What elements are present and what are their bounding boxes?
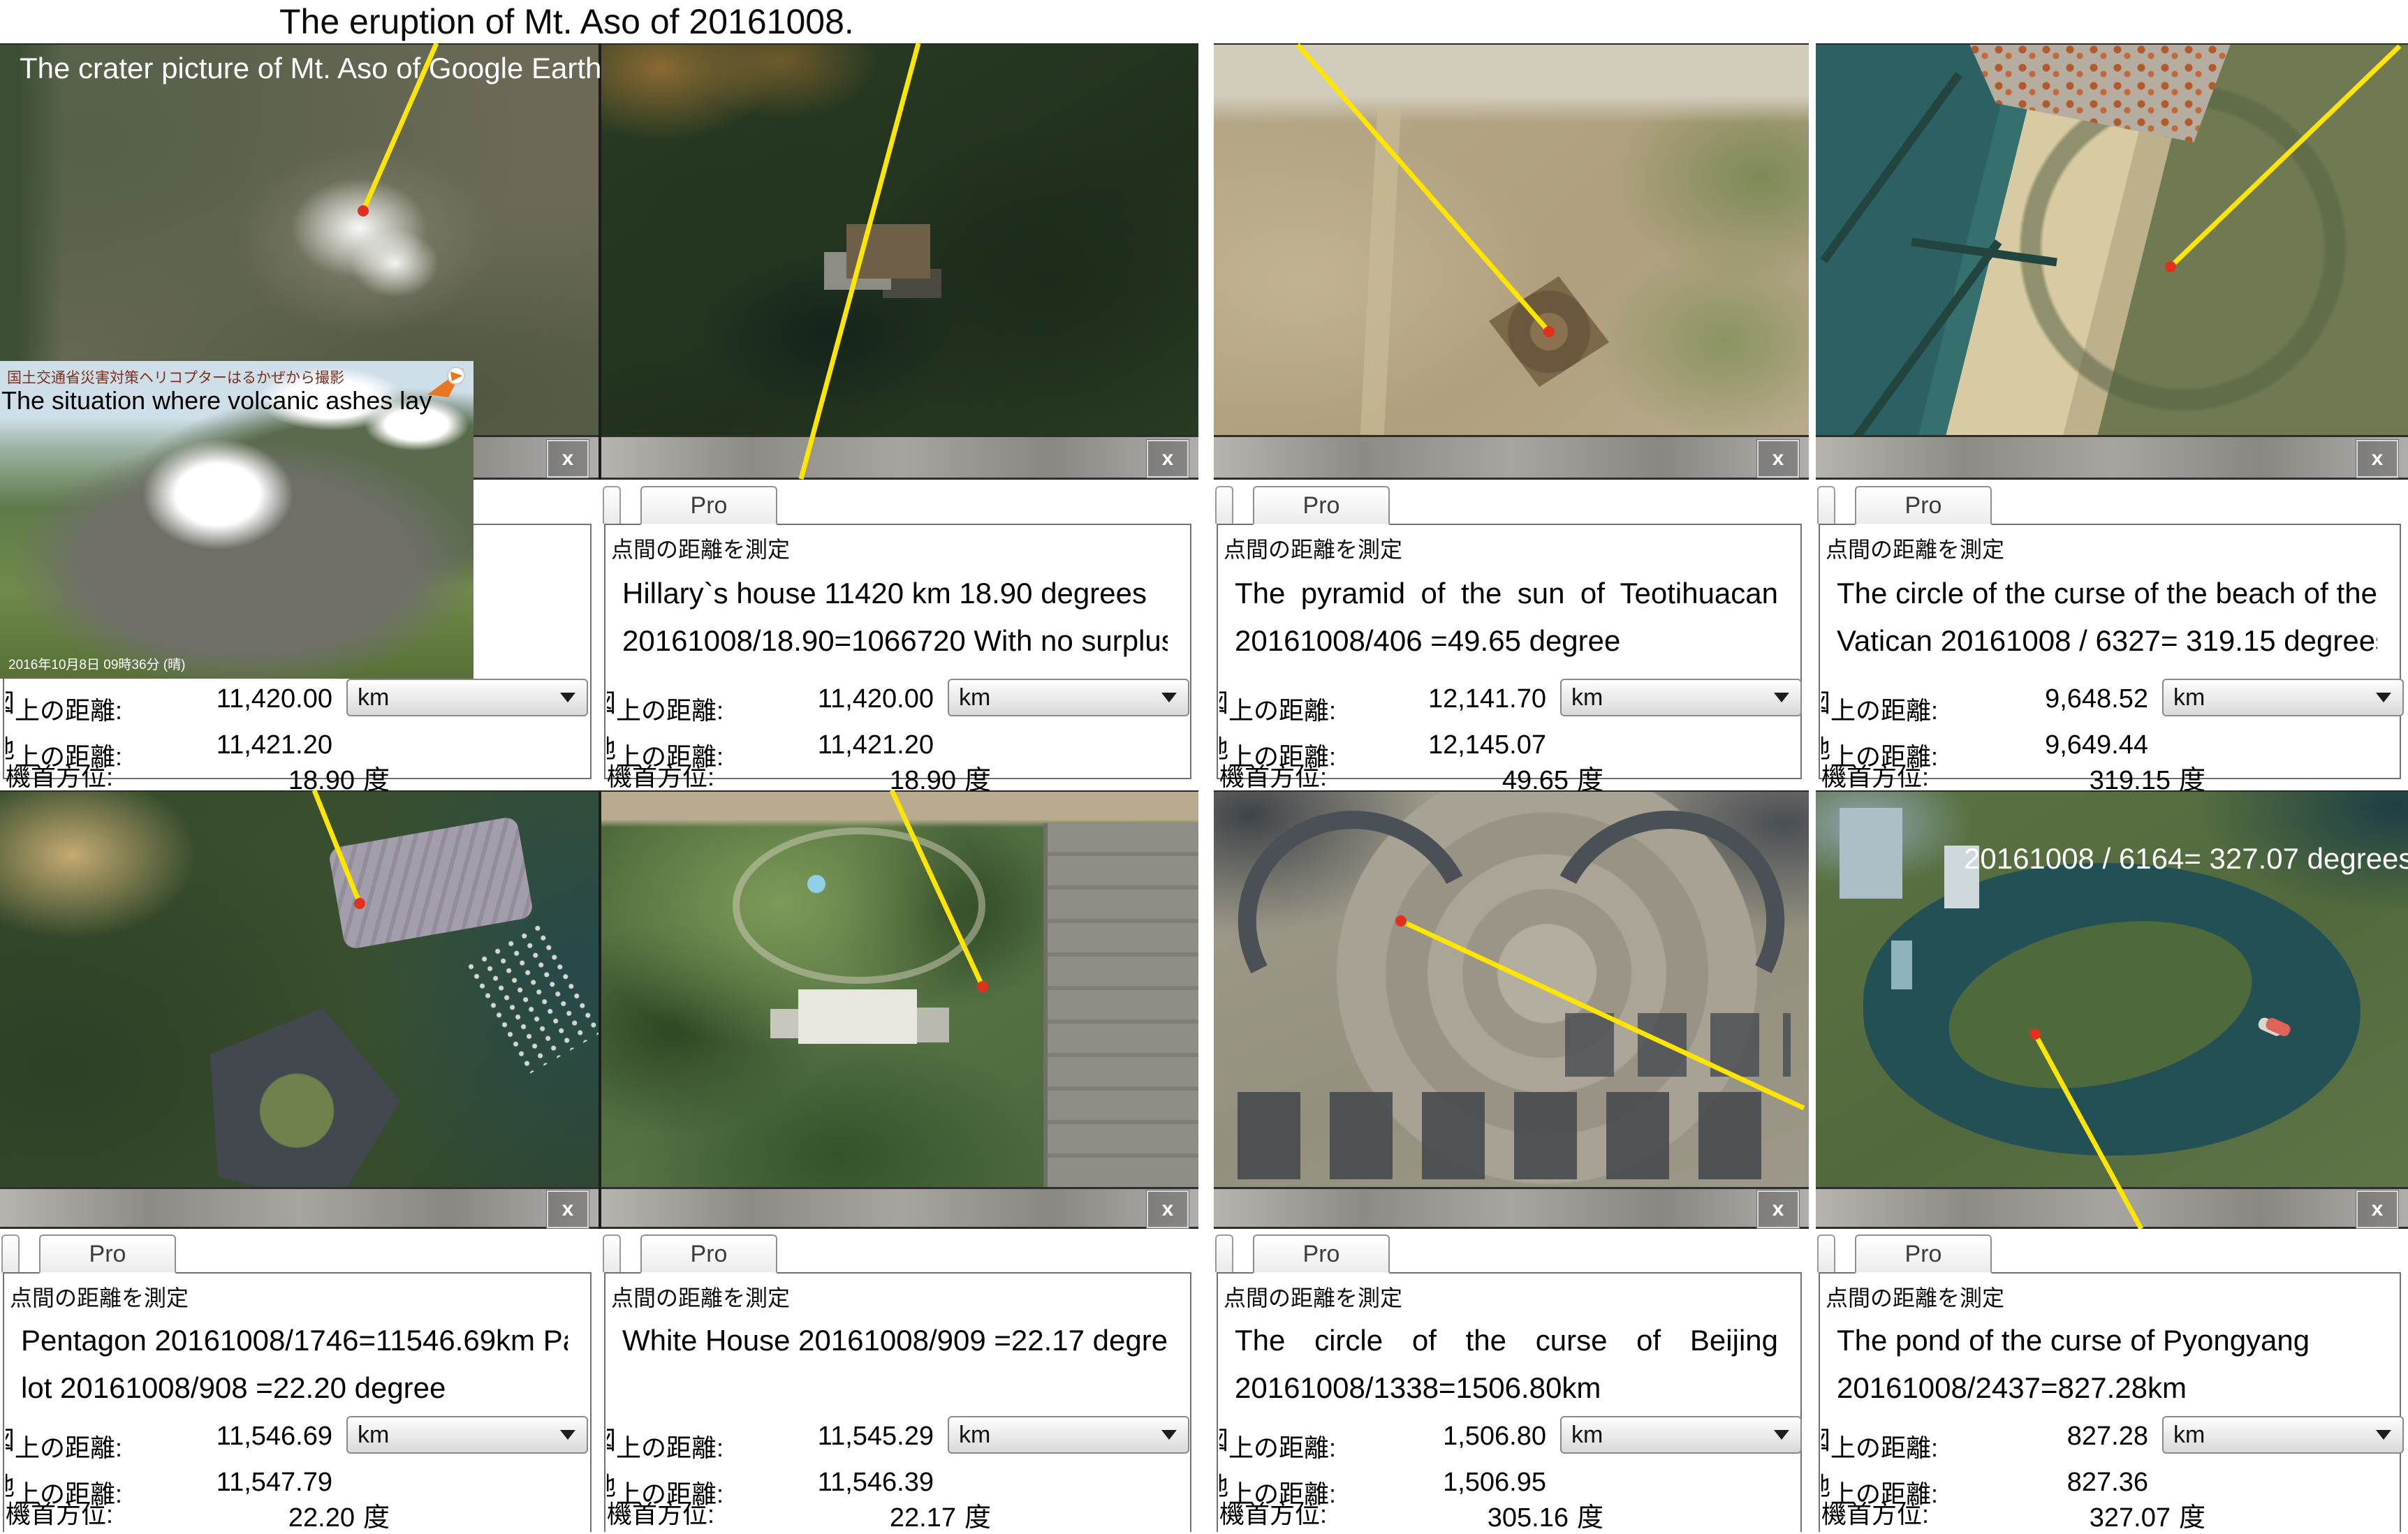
- satellite-view-white-house[interactable]: [601, 790, 1198, 1187]
- measure-dialog-title: 点間の距離を測定: [1224, 1281, 1402, 1313]
- measure-note-line1: The circle of the curse of the beach of …: [1837, 577, 2377, 610]
- window-bottom-strip: [1214, 1187, 1809, 1229]
- map-distance-value: 827.28: [1816, 1422, 2148, 1452]
- map-distance-row: 図上の距離: 1,506.80 km: [1214, 1416, 1809, 1456]
- heading-row: 機首方位: 18.90度: [0, 753, 599, 793]
- measure-dialog-title: 点間の距離を測定: [10, 1281, 189, 1313]
- chevron-down-icon: [560, 693, 575, 702]
- unit-select[interactable]: km: [948, 679, 1189, 716]
- government-building: [1043, 823, 1198, 1187]
- unit-select[interactable]: km: [1560, 679, 1802, 716]
- window-bottom-strip: [1816, 1187, 2408, 1229]
- inset-caption: The situation where volcanic ashes lay: [1, 386, 432, 415]
- inset-credit: 国土交通省災害対策ヘリコプターはるかぜから撮影: [7, 367, 344, 388]
- tab-stub[interactable]: [1817, 1234, 1835, 1272]
- map-distance-value: 11,420.00: [0, 684, 332, 714]
- tab-pro[interactable]: Pro: [640, 1234, 777, 1274]
- chevron-down-icon: [560, 1430, 575, 1440]
- chevron-down-icon: [1774, 1430, 1789, 1440]
- map-distance-row: 図上の距離: 9,648.52 km: [1816, 679, 2408, 719]
- satellite-view-vatican-beach[interactable]: [1816, 43, 2408, 435]
- measure-note-line1: Hillary`s house 11420 km 18.90 degrees: [622, 577, 1168, 610]
- window-bottom-strip: [601, 435, 1198, 480]
- heading-row: 機首方位: 49.65度: [1214, 753, 1809, 793]
- tab-pro[interactable]: Pro: [1253, 1234, 1390, 1274]
- close-button[interactable]: x: [547, 440, 589, 478]
- tab-stub[interactable]: [1, 1234, 20, 1272]
- chevron-down-icon: [1161, 693, 1177, 702]
- heading-value: 18.90度: [601, 758, 991, 797]
- building-row: [1565, 1013, 1791, 1077]
- close-button[interactable]: x: [2356, 1190, 2398, 1228]
- window-bottom-strip: [1214, 435, 1809, 480]
- unit-select[interactable]: km: [2162, 1416, 2404, 1454]
- heading-row: 機首方位: 319.15度: [1816, 753, 2408, 793]
- tab-stub[interactable]: [1215, 486, 1233, 524]
- page-title: The eruption of Mt. Aso of 20161008.: [279, 1, 854, 42]
- fountain: [807, 875, 825, 893]
- heading-row: 機首方位: 305.16度: [1214, 1490, 1809, 1531]
- satellite-view-teotihuacan[interactable]: [1214, 43, 1809, 435]
- measure-note-line2: 20161008/1338=1506.80km: [1235, 1371, 1778, 1405]
- map-distance-value: 12,141.70: [1214, 684, 1546, 714]
- chevron-down-icon: [2376, 1430, 2391, 1440]
- measure-note-line2: Vatican 20161008 / 6327= 319.15 degrees: [1837, 624, 2377, 658]
- image-overlay-text: 20161008 / 6164= 327.07 degrees: [1964, 842, 2408, 876]
- tab-pro[interactable]: Pro: [1855, 1234, 1992, 1274]
- heading-value: 327.07度: [1816, 1496, 2205, 1534]
- map-distance-row: 図上の距離: 827.28 km: [1816, 1416, 2408, 1456]
- window-seam: [599, 43, 601, 480]
- tab-pro[interactable]: Pro: [640, 486, 777, 525]
- window-bottom-strip: [1816, 435, 2408, 480]
- heading-value: 22.17度: [601, 1496, 991, 1534]
- measure-note-line1: Pentagon 20161008/1746=11546.69km Parkin…: [21, 1324, 568, 1357]
- map-distance-value: 11,545.29: [601, 1422, 934, 1452]
- map-distance-row: 図上の距離: 11,546.69 km: [0, 1416, 599, 1456]
- unit-select[interactable]: km: [346, 679, 588, 716]
- heading-row: 機首方位: 22.20度: [0, 1490, 599, 1531]
- map-distance-row: 図上の距離: 11,545.29 km: [601, 1416, 1198, 1456]
- map-distance-value: 1,506.80: [1214, 1422, 1546, 1452]
- measure-dialog-title: 点間の距離を測定: [611, 1281, 790, 1313]
- unit-select[interactable]: km: [2162, 679, 2404, 716]
- map-distance-row: 図上の距離: 12,141.70 km: [1214, 679, 1809, 719]
- building-row: [1238, 1092, 1785, 1179]
- satellite-view-hillarys-house[interactable]: [601, 43, 1198, 435]
- map-distance-row: 図上の距離: 11,420.00 km: [0, 679, 599, 719]
- heading-value: 305.16度: [1214, 1496, 1603, 1534]
- oval-driveway: [733, 827, 985, 984]
- tab-pro[interactable]: Pro: [39, 1234, 176, 1274]
- heading-value: 49.65度: [1214, 758, 1603, 797]
- map-distance-value: 11,420.00: [601, 684, 934, 714]
- house-building: [846, 224, 930, 279]
- unit-select[interactable]: km: [1560, 1416, 1802, 1454]
- chevron-down-icon: [1161, 1430, 1177, 1440]
- tab-pro[interactable]: Pro: [1253, 486, 1390, 525]
- map-distance-row: 図上の距離: 11,420.00 km: [601, 679, 1198, 719]
- measure-note-line1: White House 20161008/909 =22.17 degree: [622, 1324, 1168, 1357]
- unit-select[interactable]: km: [346, 1416, 588, 1454]
- heading-value: 18.90度: [0, 758, 390, 797]
- satellite-view-pentagon[interactable]: [0, 790, 599, 1187]
- tab-pro[interactable]: Pro: [1855, 486, 1992, 525]
- city-buildings: [1840, 808, 1902, 899]
- measure-dialog-title: 点間の距離を測定: [1224, 532, 1402, 564]
- close-button[interactable]: x: [1757, 440, 1799, 478]
- heading-value: 319.15度: [1816, 758, 2205, 797]
- helicopter-agency-logo-icon: [425, 365, 468, 401]
- unit-select[interactable]: km: [948, 1416, 1189, 1454]
- measure-dialog-title: 点間の距離を測定: [1826, 532, 2004, 564]
- measure-note-line2: 20161008/406 =49.65 degree: [1235, 624, 1778, 658]
- heading-row: 機首方位: 22.17度: [601, 1490, 1198, 1531]
- tab-stub[interactable]: [603, 486, 621, 524]
- inset-photo-volcanic-ash: 国土交通省災害対策ヘリコプターはるかぜから撮影 The situation wh…: [0, 361, 473, 679]
- measure-note-line1: The pyramid of the sun of Teotihuacan: [1235, 577, 1778, 610]
- window-bottom-strip: [601, 1187, 1198, 1229]
- window-seam: [599, 790, 601, 1229]
- close-button[interactable]: x: [547, 1190, 589, 1228]
- measure-note-line1: The pond of the curse of Pyongyang: [1837, 1324, 2377, 1357]
- measure-note-line1: The circle of the curse of Beijing: [1235, 1324, 1778, 1357]
- measure-dialog-title: 点間の距離を測定: [611, 532, 790, 564]
- measure-note-line2: 20161008/18.90=1066720 With no surplus: [622, 624, 1168, 658]
- heading-row: 機首方位: 18.90度: [601, 753, 1198, 793]
- image-caption: The crater picture of Mt. Aso of Google …: [20, 52, 601, 85]
- close-button[interactable]: x: [1147, 1190, 1189, 1228]
- tab-stub[interactable]: [1215, 1234, 1233, 1272]
- chevron-down-icon: [2376, 693, 2391, 702]
- tab-stub[interactable]: [1817, 486, 1835, 524]
- close-button[interactable]: x: [1757, 1190, 1799, 1228]
- map-distance-value: 9,648.52: [1816, 684, 2148, 714]
- satellite-view-beijing[interactable]: [1214, 790, 1809, 1187]
- window-bottom-strip: [0, 1187, 599, 1229]
- inset-timestamp: 2016年10月8日 09時36分 (晴): [8, 654, 185, 673]
- measure-dialog-title: 点間の距離を測定: [1826, 1281, 2004, 1313]
- close-button[interactable]: x: [1147, 440, 1189, 478]
- heading-value: 22.20度: [0, 1496, 390, 1534]
- heading-row: 機首方位: 327.07度: [1816, 1490, 2408, 1531]
- measure-note-line2: lot 20161008/908 =22.20 degree: [21, 1371, 568, 1405]
- chevron-down-icon: [1774, 693, 1789, 702]
- map-distance-value: 11,546.69: [0, 1422, 332, 1452]
- white-house-building: [798, 989, 917, 1044]
- close-button[interactable]: x: [2356, 440, 2398, 478]
- tab-stub[interactable]: [603, 1234, 621, 1272]
- arid-terrain: [1214, 45, 1809, 435]
- measure-note-line2: 20161008/2437=827.28km: [1837, 1371, 2377, 1405]
